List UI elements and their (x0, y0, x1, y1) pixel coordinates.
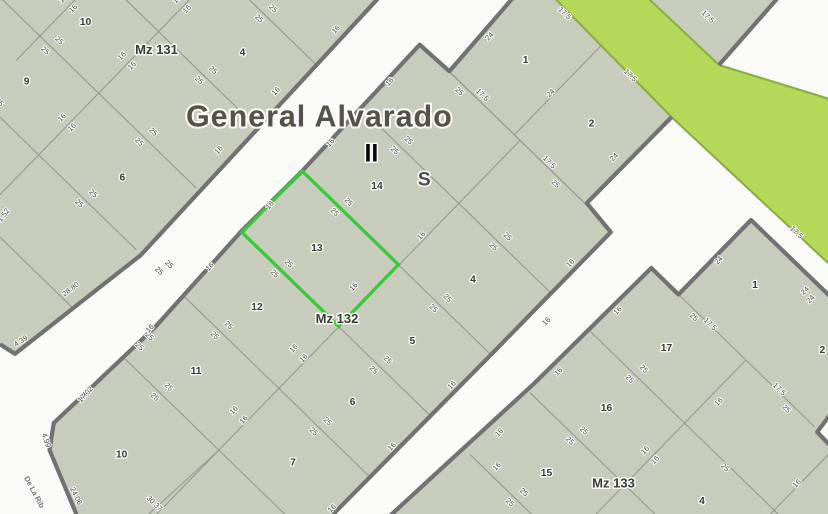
svg-text:10: 10 (116, 450, 128, 461)
svg-text:S: S (418, 169, 431, 191)
svg-text:Mz 133: Mz 133 (592, 476, 635, 491)
svg-text:17: 17 (661, 343, 673, 354)
svg-text:2: 2 (589, 119, 595, 130)
svg-text:14: 14 (371, 181, 383, 192)
svg-text:12: 12 (251, 302, 263, 313)
svg-text:4: 4 (240, 48, 246, 59)
svg-text:11: 11 (191, 366, 202, 377)
svg-text:5: 5 (410, 336, 416, 347)
svg-text:Mz 131: Mz 131 (135, 42, 178, 57)
svg-text:Mz 132: Mz 132 (316, 311, 359, 326)
svg-text:15: 15 (541, 468, 553, 479)
svg-text:General Alvarado: General Alvarado (186, 100, 453, 134)
svg-text:9: 9 (24, 76, 30, 87)
svg-text:4: 4 (470, 275, 476, 286)
svg-text:10: 10 (80, 17, 92, 28)
svg-text:2: 2 (820, 345, 826, 356)
svg-text:13: 13 (311, 243, 323, 254)
svg-text:6: 6 (120, 173, 126, 184)
svg-text:II: II (364, 140, 378, 168)
svg-text:7: 7 (290, 458, 296, 469)
svg-text:1: 1 (523, 55, 529, 66)
svg-text:16: 16 (601, 403, 613, 414)
svg-text:6: 6 (350, 397, 356, 408)
svg-text:4: 4 (699, 496, 705, 507)
svg-text:1: 1 (752, 280, 758, 291)
